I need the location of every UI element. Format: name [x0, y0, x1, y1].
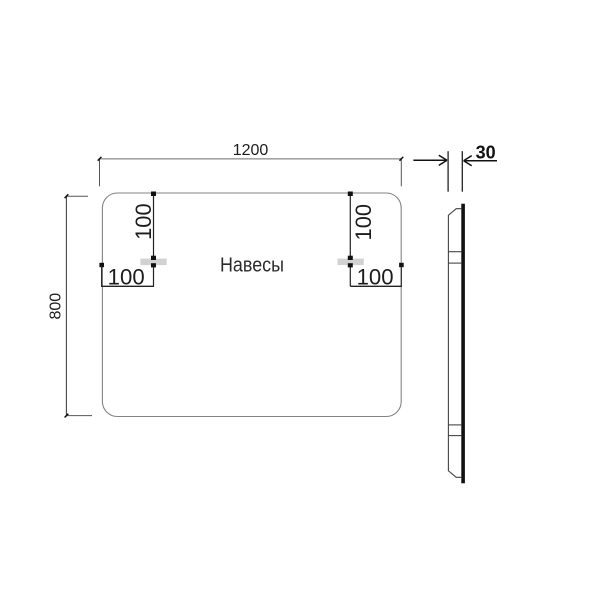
svg-text:1200: 1200: [233, 142, 269, 159]
svg-text:100: 100: [108, 265, 145, 290]
svg-text:100: 100: [351, 204, 376, 241]
svg-text:Навесы: Навесы: [220, 254, 284, 276]
svg-text:800: 800: [48, 293, 65, 320]
svg-text:100: 100: [131, 203, 156, 240]
svg-text:100: 100: [357, 264, 394, 289]
svg-text:30: 30: [476, 142, 496, 162]
